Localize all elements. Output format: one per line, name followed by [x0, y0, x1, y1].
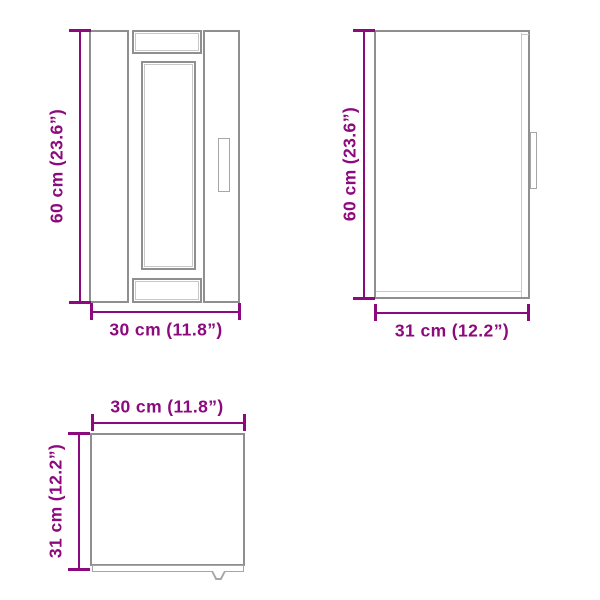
top-door-strip — [92, 565, 244, 572]
dimension-line — [78, 433, 80, 570]
dimension-line — [92, 422, 245, 424]
top-body — [90, 433, 245, 566]
top-depth-label: 31 cm (12.2”) — [46, 444, 67, 558]
dimension-cap — [68, 432, 90, 435]
cabinet-dimension-diagram: 60 cm (23.6”) 30 cm (11.8”) 60 cm (23.6”… — [0, 0, 600, 600]
top-handle-notch-inner — [213, 571, 224, 578]
top-handle-notch — [211, 571, 226, 580]
dimension-cap — [91, 414, 94, 431]
dimension-cap — [68, 568, 90, 571]
dimension-cap — [243, 414, 246, 431]
top-view: 30 cm (11.8”) 31 cm (12.2”) — [0, 0, 600, 600]
top-width-label: 30 cm (11.8”) — [110, 397, 223, 418]
